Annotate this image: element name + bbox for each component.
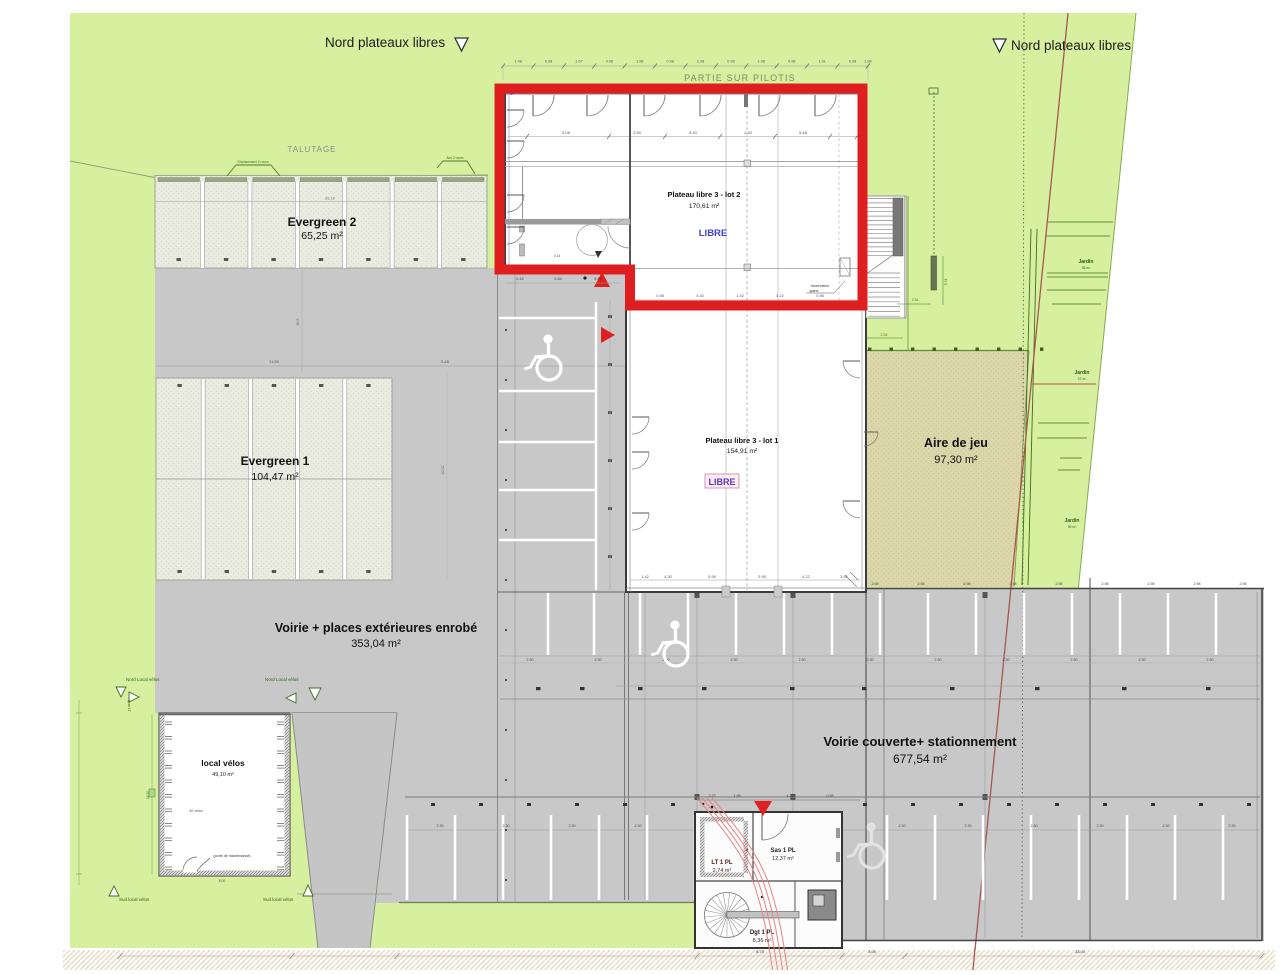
- svg-text:Plateau libre 3 - lot 2: Plateau libre 3 - lot 2: [668, 190, 741, 199]
- svg-text:2.98: 2.98: [1102, 582, 1109, 586]
- svg-text:4.23: 4.23: [787, 794, 794, 798]
- svg-text:PARTIE SUR PILOTIS: PARTIE SUR PILOTIS: [684, 73, 796, 83]
- svg-text:Nord Local vélos: Nord Local vélos: [126, 677, 160, 682]
- svg-text:8.75: 8.75: [756, 949, 765, 954]
- svg-text:2.30: 2.30: [595, 658, 602, 662]
- svg-text:1.01: 1.01: [819, 60, 826, 64]
- svg-text:353,04 m²: 353,04 m²: [351, 638, 401, 650]
- svg-text:LIBRE: LIBRE: [709, 477, 736, 487]
- svg-text:170,61 m²: 170,61 m²: [689, 203, 720, 210]
- svg-text:26.10: 26.10: [325, 196, 336, 201]
- svg-text:Evergreen 1: Evergreen 1: [241, 454, 310, 468]
- svg-text:0.98: 0.98: [667, 60, 674, 64]
- svg-text:2.30: 2.30: [744, 130, 753, 135]
- svg-text:33,04: 33,04: [1075, 949, 1086, 954]
- svg-text:Plateau libre 3 - lot 1: Plateau libre 3 - lot 1: [706, 436, 779, 445]
- svg-text:Voirie + places extérieures en: Voirie + places extérieures enrobé: [275, 621, 477, 635]
- svg-text:16.30: 16.30: [146, 791, 150, 800]
- svg-text:5.40: 5.40: [689, 130, 698, 135]
- svg-text:2.34: 2.34: [881, 333, 888, 337]
- svg-text:1.98: 1.98: [636, 60, 643, 64]
- svg-text:0.98: 0.98: [545, 60, 552, 64]
- svg-text:0.84: 0.84: [554, 277, 561, 281]
- svg-text:5.48: 5.48: [441, 359, 450, 364]
- svg-text:2.23: 2.23: [709, 794, 716, 798]
- svg-text:3.05: 3.05: [868, 949, 877, 954]
- svg-text:Jardin: Jardin: [1074, 370, 1089, 376]
- svg-text:2.98: 2.98: [1056, 582, 1063, 586]
- svg-text:Jardin: Jardin: [1064, 518, 1079, 524]
- svg-text:Sud local vélos: Sud local vélos: [119, 897, 150, 902]
- svg-text:8.00: 8.00: [219, 879, 226, 883]
- svg-text:Abri 2 roues: Abri 2 roues: [446, 156, 464, 160]
- svg-text:2.30: 2.30: [935, 658, 942, 662]
- svg-text:0.98: 0.98: [849, 60, 856, 64]
- svg-text:gaine: gaine: [809, 289, 818, 293]
- svg-text:0.14: 0.14: [554, 254, 561, 258]
- svg-text:1.98: 1.98: [864, 60, 871, 64]
- svg-text:2.30: 2.30: [731, 658, 738, 662]
- svg-text:5.74: 5.74: [944, 279, 948, 286]
- svg-text:2.98: 2.98: [918, 582, 925, 586]
- svg-text:2.34: 2.34: [912, 298, 919, 302]
- svg-text:2.98: 2.98: [872, 582, 879, 586]
- svg-text:154,91 m²: 154,91 m²: [727, 448, 758, 455]
- svg-text:39 m²: 39 m²: [1068, 525, 1078, 529]
- svg-text:5.08: 5.08: [562, 130, 571, 135]
- svg-text:TALUTAGE: TALUTAGE: [287, 145, 336, 154]
- svg-text:Quai LT: Quai LT: [127, 700, 131, 712]
- svg-text:2.30: 2.30: [1071, 658, 1078, 662]
- svg-text:1.48: 1.48: [515, 60, 522, 64]
- svg-text:2.30: 2.30: [1031, 824, 1038, 828]
- svg-text:2.30: 2.30: [635, 824, 642, 828]
- svg-text:5.95: 5.95: [708, 575, 715, 579]
- svg-text:0.98: 0.98: [827, 794, 834, 798]
- svg-text:2.30: 2.30: [867, 658, 874, 662]
- svg-text:11.95: 11.95: [269, 359, 279, 364]
- svg-text:2.30: 2.30: [1097, 824, 1104, 828]
- svg-text:0.98: 0.98: [656, 294, 663, 298]
- svg-text:2.98: 2.98: [1240, 582, 1247, 586]
- svg-text:2.30: 2.30: [527, 658, 534, 662]
- svg-text:2,74 m²: 2,74 m²: [713, 868, 732, 874]
- svg-text:Emplacement 2 roues: Emplacement 2 roues: [237, 160, 268, 164]
- svg-text:2.30: 2.30: [1229, 824, 1236, 828]
- svg-text:97,30 m²: 97,30 m²: [934, 454, 978, 466]
- svg-text:Sud local vélos: Sud local vélos: [263, 897, 294, 902]
- svg-text:0.98: 0.98: [727, 60, 734, 64]
- svg-text:1.42: 1.42: [641, 575, 648, 579]
- svg-text:65,25 m²: 65,25 m²: [301, 230, 343, 242]
- svg-text:1.98: 1.98: [734, 794, 741, 798]
- svg-text:5.94: 5.94: [594, 277, 601, 281]
- svg-text:réservation: réservation: [811, 284, 830, 288]
- svg-text:2.30: 2.30: [799, 658, 806, 662]
- svg-text:Aire de jeu: Aire de jeu: [924, 436, 988, 450]
- svg-text:2.30: 2.30: [899, 824, 906, 828]
- svg-text:2.98: 2.98: [964, 582, 971, 586]
- svg-text:3.95: 3.95: [758, 575, 765, 579]
- svg-text:2.98: 2.98: [1194, 582, 1201, 586]
- svg-text:(porte de maintenance): (porte de maintenance): [213, 854, 250, 858]
- svg-text:Sas 1 PL: Sas 1 PL: [770, 848, 795, 854]
- svg-text:104,47 m²: 104,47 m²: [251, 471, 299, 483]
- svg-text:Jardin: Jardin: [1078, 259, 1093, 265]
- svg-text:2.30: 2.30: [1003, 658, 1010, 662]
- svg-text:4.22: 4.22: [802, 575, 809, 579]
- svg-text:2.30: 2.30: [503, 824, 510, 828]
- svg-text:1.98: 1.98: [697, 60, 704, 64]
- svg-text:677,54 m²: 677,54 m²: [893, 752, 947, 766]
- svg-text:0.42: 0.42: [516, 277, 523, 281]
- svg-text:40 vélos: 40 vélos: [189, 809, 203, 813]
- svg-text:Evergreen 2: Evergreen 2: [288, 215, 357, 229]
- svg-text:4.30: 4.30: [664, 575, 671, 579]
- svg-text:3.30: 3.30: [633, 130, 642, 135]
- svg-text:2.30: 2.30: [965, 824, 972, 828]
- svg-text:2.30: 2.30: [1207, 658, 1214, 662]
- svg-text:35 m²: 35 m²: [1082, 266, 1092, 270]
- svg-text:2.98: 2.98: [1010, 582, 1017, 586]
- svg-text:12,37 m²: 12,37 m²: [772, 856, 794, 862]
- svg-text:Nord plateaux libres: Nord plateaux libres: [1011, 38, 1131, 53]
- svg-text:2.98: 2.98: [1148, 582, 1155, 586]
- svg-text:5.48: 5.48: [799, 130, 808, 135]
- svg-text:0.98: 0.98: [788, 60, 795, 64]
- svg-text:2.30: 2.30: [437, 824, 444, 828]
- svg-text:LT 1 PL: LT 1 PL: [711, 860, 733, 866]
- svg-text:3.30: 3.30: [696, 294, 703, 298]
- svg-text:0.98: 0.98: [606, 60, 613, 64]
- svg-text:Nord Local vélos: Nord Local vélos: [265, 677, 299, 682]
- svg-text:37 m²: 37 m²: [1078, 377, 1088, 381]
- svg-text:0.98: 0.98: [816, 294, 823, 298]
- svg-text:2.30: 2.30: [569, 824, 576, 828]
- svg-text:local vélos: local vélos: [201, 758, 245, 768]
- svg-text:LIBRE: LIBRE: [699, 228, 728, 239]
- svg-text:60.5: 60.5: [296, 319, 300, 326]
- svg-text:1.42: 1.42: [736, 294, 743, 298]
- svg-text:1.98: 1.98: [758, 60, 765, 64]
- svg-text:Voirie couverte+ stationnement: Voirie couverte+ stationnement: [823, 734, 1017, 749]
- svg-text:4.22: 4.22: [776, 294, 783, 298]
- svg-text:2.30: 2.30: [1163, 824, 1170, 828]
- svg-text:1.07: 1.07: [575, 60, 582, 64]
- svg-text:2.30: 2.30: [1139, 658, 1146, 662]
- svg-text:20.02: 20.02: [441, 466, 445, 475]
- svg-text:Nord plateaux libres: Nord plateaux libres: [325, 35, 445, 50]
- svg-text:49,10 m²: 49,10 m²: [212, 772, 234, 778]
